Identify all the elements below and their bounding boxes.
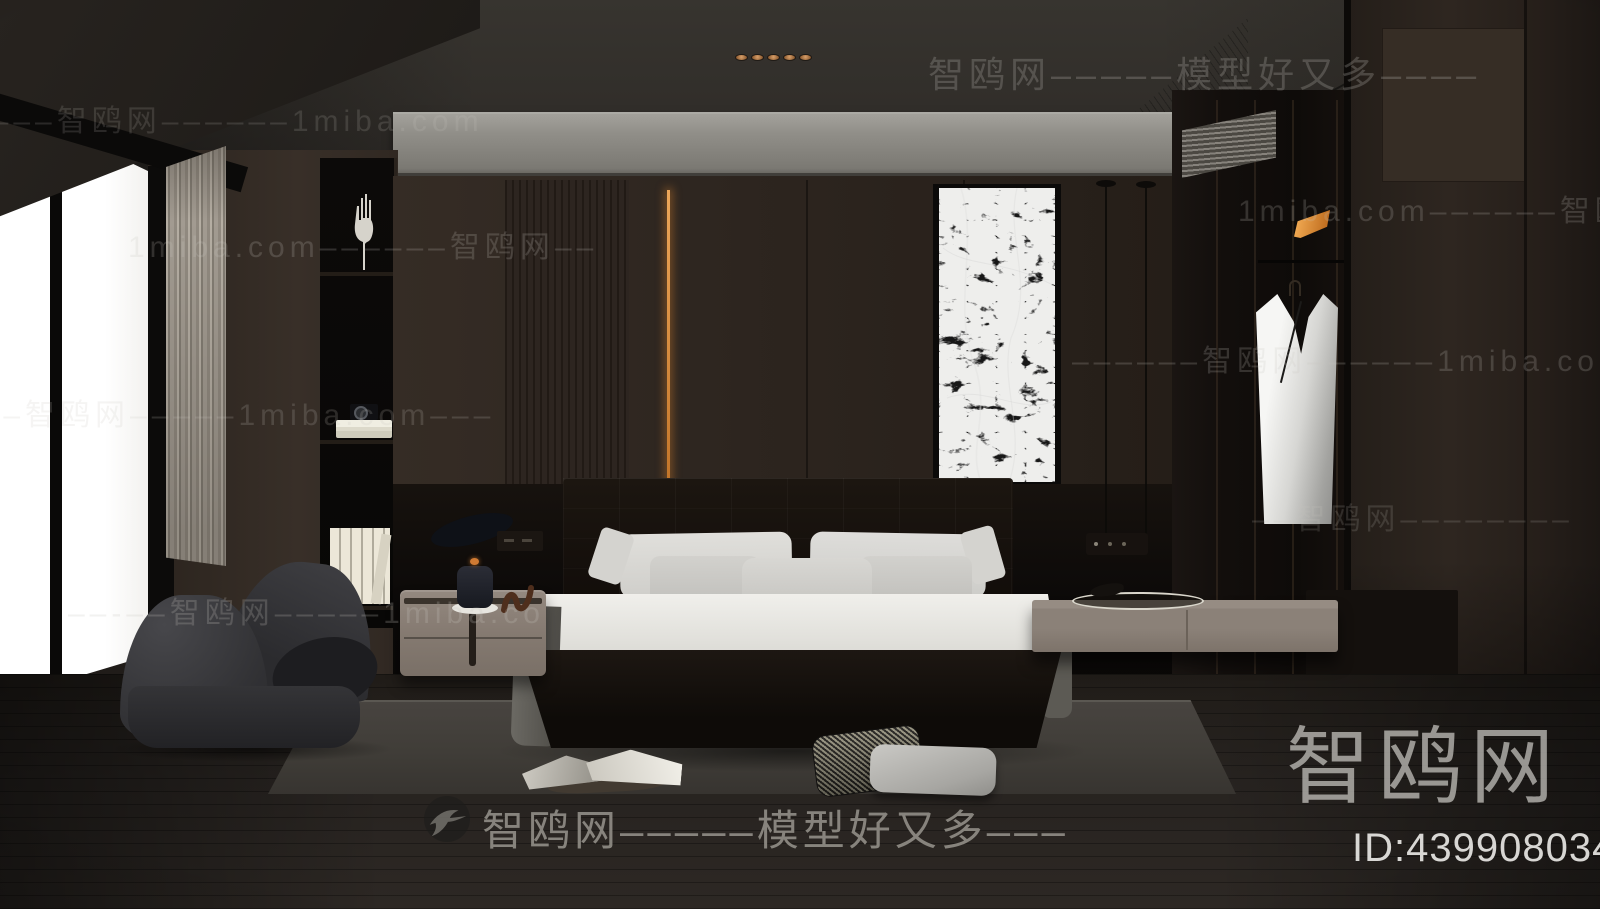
marble-art-panel [939,188,1055,482]
watermark-row: ––––智鸥网––––––1miba.com [0,96,484,140]
wall-panel-seam [806,180,808,486]
shelf-ledge [320,272,394,276]
watermark-brand-large: 智鸥网 [1286,700,1562,821]
watermark-row: 1miba.com––––––智鸥网–– [128,222,598,266]
headboard-device [1086,533,1148,555]
wardrobe-shelf [1258,260,1350,263]
bed-base [512,650,1070,748]
pendant-ceiling-mount [1136,181,1156,188]
ceiling-spotlight [783,54,796,61]
shelf-ledge [320,440,394,444]
ceiling-spotlight [767,54,780,61]
watermark-row: ––––––智鸥网––––––1miba.com [1072,336,1600,380]
watermark-model-id: ID:439908034 [1352,826,1600,871]
console-seam [1186,610,1188,650]
ceiling-light-cove [393,112,1172,180]
watermark-bottom-text: 智鸥网–––––模型好又多––– [482,797,1069,858]
swallow-bird-icon [424,796,470,842]
ceiling-spotlight [799,54,812,61]
floating-console [1032,600,1338,652]
watermark-row: ––-––智鸥网–––––1miba.co [68,588,545,632]
led-strip-light [667,190,670,488]
watermark-row: 智鸥网–––––模型好又多–––– [928,46,1481,98]
coat-hanger-hook [1289,280,1301,296]
armchair-base [128,686,360,748]
watermark-row: –––智鸥网–––––1miba.com––– [0,390,495,434]
bedroom-3d-render: 智鸥网–––––模型好又多–––– ––––智鸥网––––––1miba.com… [0,0,1600,909]
pendant-ceiling-mount [1096,180,1116,187]
ceiling-spotlight [735,54,748,61]
floor-cushion-light [869,744,997,796]
curtain [166,146,226,566]
ceiling-spotlight [751,54,764,61]
wall-switch-panel [497,531,543,551]
watermark-row: ––智鸥网–––––––– [1252,494,1574,538]
watermark-row: 1miba.com––––––智鸥网–– [1238,186,1600,230]
table-lamp-glow [470,558,479,565]
